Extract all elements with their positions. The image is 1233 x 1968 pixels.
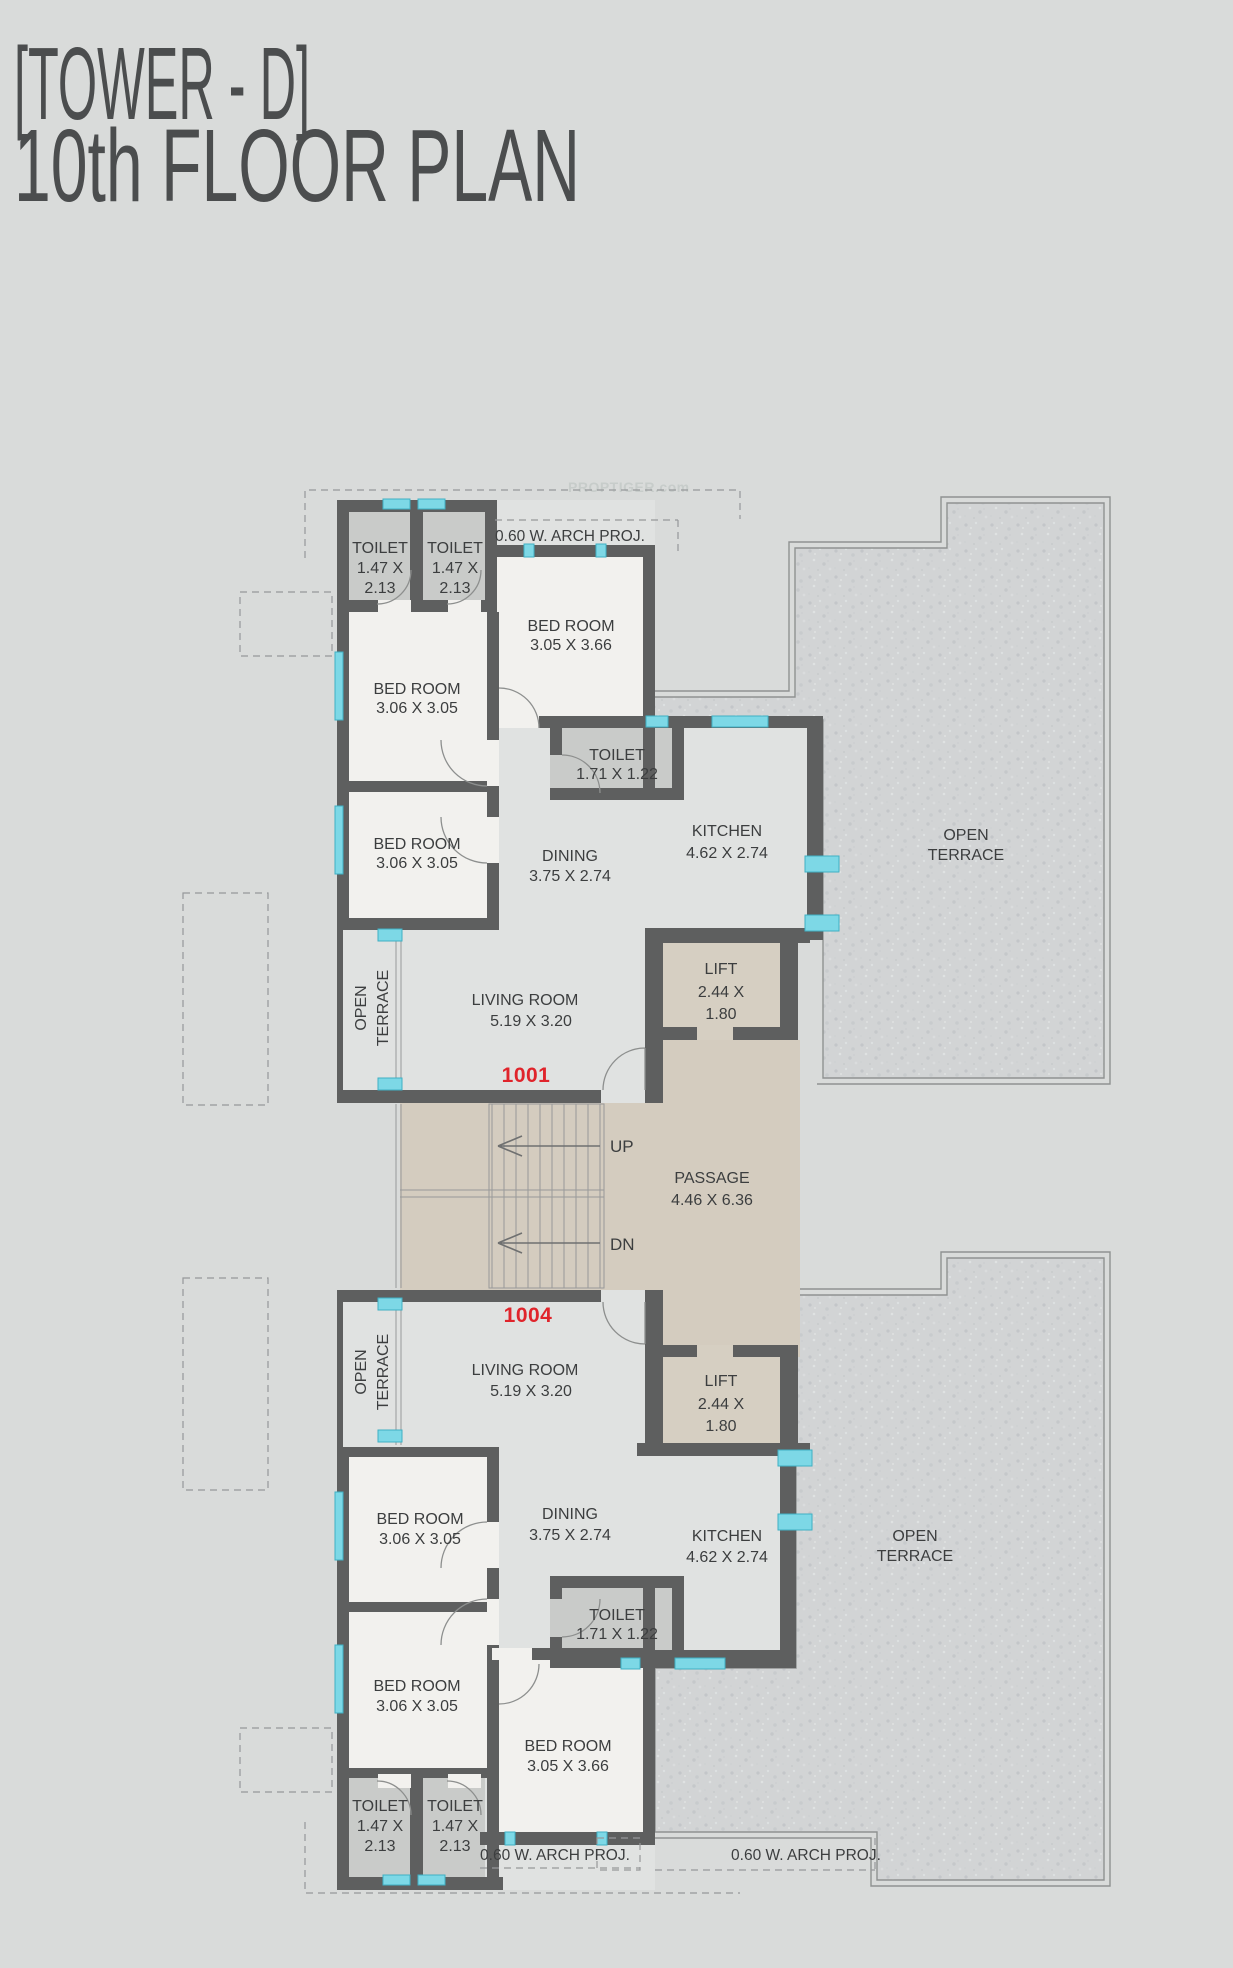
toilet-a-label: TOILET [352, 540, 408, 557]
lift-dims2: 1.80 [705, 1006, 736, 1023]
kitchen-label: KITCHEN [692, 1528, 762, 1545]
living-dims: 5.19 X 3.20 [490, 1383, 572, 1400]
toilet-c-dims: 1.71 X 1.22 [576, 1626, 658, 1643]
toilet-b-dims2: 2.13 [439, 580, 470, 597]
lift-lobby-top [663, 1040, 800, 1103]
dining-label: DINING [542, 848, 598, 865]
floor-plan-canvas: [TOWER - D] 10th FLOOR PLAN PROPTIGER.co… [0, 0, 1233, 1968]
toilet-a-dims1: 1.47 X [357, 1818, 404, 1835]
passage-dims: 4.46 X 6.36 [671, 1192, 753, 1209]
arch-proj-top-label: 0.60 W. ARCH PROJ. [495, 528, 645, 545]
passage-label: PASSAGE [674, 1170, 749, 1187]
dining-dims: 3.75 X 2.74 [529, 1527, 611, 1544]
bedroom-b-dims: 3.06 X 3.05 [376, 855, 458, 872]
bedroom-a-dims: 3.06 X 3.05 [379, 1531, 461, 1548]
stairs-down-label: DN [610, 1235, 635, 1254]
toilet-b-label: TOILET [427, 1798, 483, 1815]
toilet-b-label: TOILET [427, 540, 483, 557]
toilet-a-dims2: 2.13 [364, 1838, 395, 1855]
dining-dims: 3.75 X 2.74 [529, 868, 611, 885]
terrace-side-line2: TERRACE [375, 1334, 392, 1410]
lift-dims2: 1.80 [705, 1418, 736, 1435]
toilet-c-dims: 1.71 X 1.22 [576, 766, 658, 783]
arch-proj-bottom-left-label: 0.60 W. ARCH PROJ. [480, 1847, 630, 1864]
bedroom-c-label: BED ROOM [527, 618, 614, 635]
terrace-main-line1: OPEN [892, 1528, 937, 1545]
terrace-side-line1: OPEN [353, 985, 370, 1030]
lift-dims1: 2.44 X [698, 984, 745, 1001]
bedroom-a-dims: 3.06 X 3.05 [376, 700, 458, 717]
toilet-b-dims1: 1.47 X [432, 1818, 479, 1835]
title-line-2: 10th FLOOR PLAN [14, 108, 580, 223]
bedroom-a-label: BED ROOM [373, 681, 460, 698]
kitchen-label: KITCHEN [692, 823, 762, 840]
living-label: LIVING ROOM [472, 1362, 579, 1379]
room-bedroom-a-1004 [349, 1457, 487, 1602]
terrace-main-line1: OPEN [943, 827, 988, 844]
living-dims: 5.19 X 3.20 [490, 1013, 572, 1030]
bedroom-b-label: BED ROOM [373, 1678, 460, 1695]
unit-number-1004: 1004 [504, 1304, 553, 1327]
kitchen-dims: 4.62 X 2.74 [686, 1549, 768, 1566]
bedroom-b-dims: 3.06 X 3.05 [376, 1698, 458, 1715]
bedroom-c-label: BED ROOM [524, 1738, 611, 1755]
terrace-side-line2: TERRACE [375, 970, 392, 1046]
lift-label: LIFT [705, 961, 738, 978]
terrace-side-line1: OPEN [353, 1349, 370, 1394]
bedroom-c-dims: 3.05 X 3.66 [530, 637, 612, 654]
toilet-a-dims1: 1.47 X [357, 560, 404, 577]
lift-dims1: 2.44 X [698, 1396, 745, 1413]
stairs-up-label: UP [610, 1137, 634, 1156]
arch-proj-bottom-right-label: 0.60 W. ARCH PROJ. [731, 1847, 881, 1864]
toilet-a-dims2: 2.13 [364, 580, 395, 597]
lift-label: LIFT [705, 1373, 738, 1390]
toilet-b-dims2: 2.13 [439, 1838, 470, 1855]
unit-number-1001: 1001 [502, 1064, 551, 1087]
terrace-main-line2: TERRACE [877, 1548, 953, 1565]
toilet-b-dims1: 1.47 X [432, 560, 479, 577]
toilet-c-label: TOILET [589, 1607, 645, 1624]
living-label: LIVING ROOM [472, 992, 579, 1009]
bedroom-c-dims: 3.05 X 3.66 [527, 1758, 609, 1775]
bedroom-a-label: BED ROOM [376, 1511, 463, 1528]
dining-label: DINING [542, 1506, 598, 1523]
page-title: [TOWER - D] 10th FLOOR PLAN [14, 26, 580, 223]
terrace-main-line2: TERRACE [928, 847, 1004, 864]
kitchen-dims: 4.62 X 2.74 [686, 845, 768, 862]
toilet-c-label: TOILET [589, 747, 645, 764]
bedroom-b-label: BED ROOM [373, 836, 460, 853]
toilet-a-label: TOILET [352, 1798, 408, 1815]
watermark: PROPTIGER.com [568, 479, 690, 495]
